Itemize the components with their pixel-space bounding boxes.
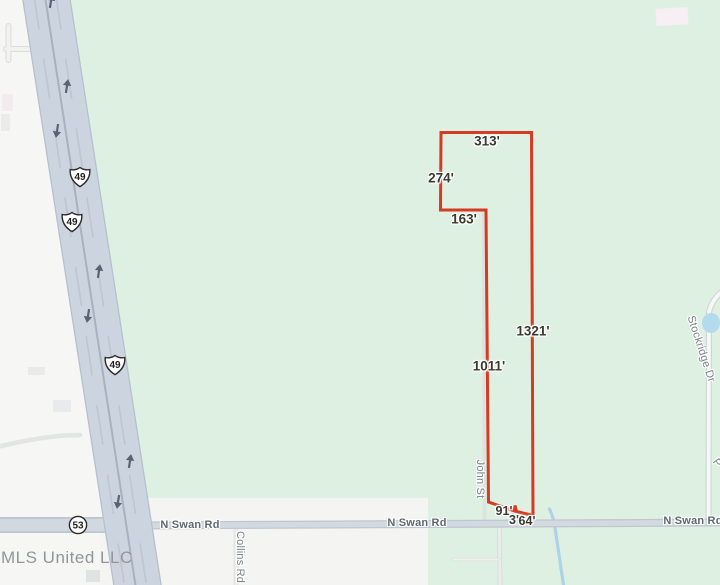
us-49-shield: 49	[60, 211, 84, 233]
us-49-shield: 49	[103, 354, 127, 376]
street-label-john-st: John St	[474, 460, 486, 499]
basemap-canvas	[0, 0, 720, 585]
street-label-collins-rd: Collins Rd	[234, 531, 246, 583]
parcel-dimension-jog: 163'	[451, 212, 477, 227]
route-number: 49	[66, 217, 78, 228]
route-number: 49	[74, 172, 86, 183]
map-viewport[interactable]: 49 49 49 53 N Swan Rd N Swan Rd N Swan R…	[0, 0, 720, 585]
parcel-dimension-bottom-east: 64'	[519, 514, 536, 528]
route-number: 49	[109, 360, 121, 371]
ms-53-shield: 53	[67, 514, 89, 536]
parcel-dimension-east: 1321'	[516, 324, 549, 339]
parcel-dimension-bottom-jog: 3'	[509, 513, 519, 527]
parcel-dimension-upper-left: 274'	[428, 171, 454, 186]
street-label-n-swan-rd-west: N Swan Rd	[160, 519, 219, 531]
route-number: 53	[72, 521, 84, 532]
street-label-n-swan-rd-center: N Swan Rd	[387, 517, 446, 529]
watermark-mls-united: MLS United LLC	[1, 548, 133, 568]
parcel-dimension-top: 313'	[474, 134, 500, 149]
us-49-shield: 49	[68, 166, 92, 188]
parcel-dimension-west: 1011'	[473, 359, 506, 374]
street-label-n-swan-rd-east: N Swan Rd	[663, 515, 720, 527]
pond	[702, 313, 720, 333]
